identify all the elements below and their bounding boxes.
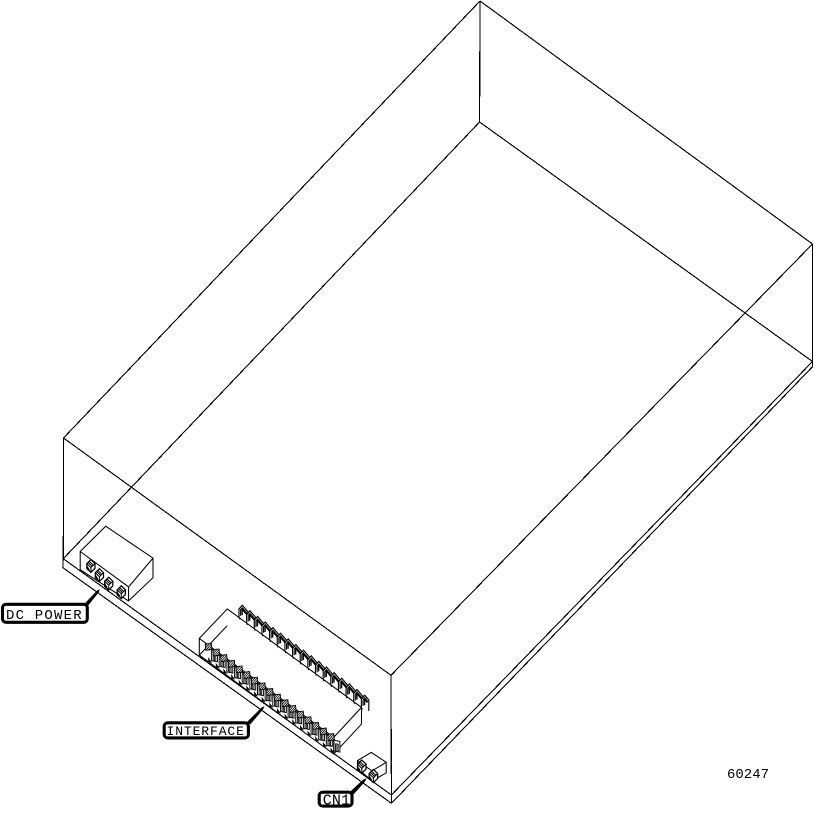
svg-text:DC POWER: DC POWER [6, 608, 83, 624]
svg-text:CN1: CN1 [323, 793, 351, 810]
svg-text:INTERFACE: INTERFACE [167, 724, 245, 739]
svg-text:60247: 60247 [727, 767, 769, 783]
